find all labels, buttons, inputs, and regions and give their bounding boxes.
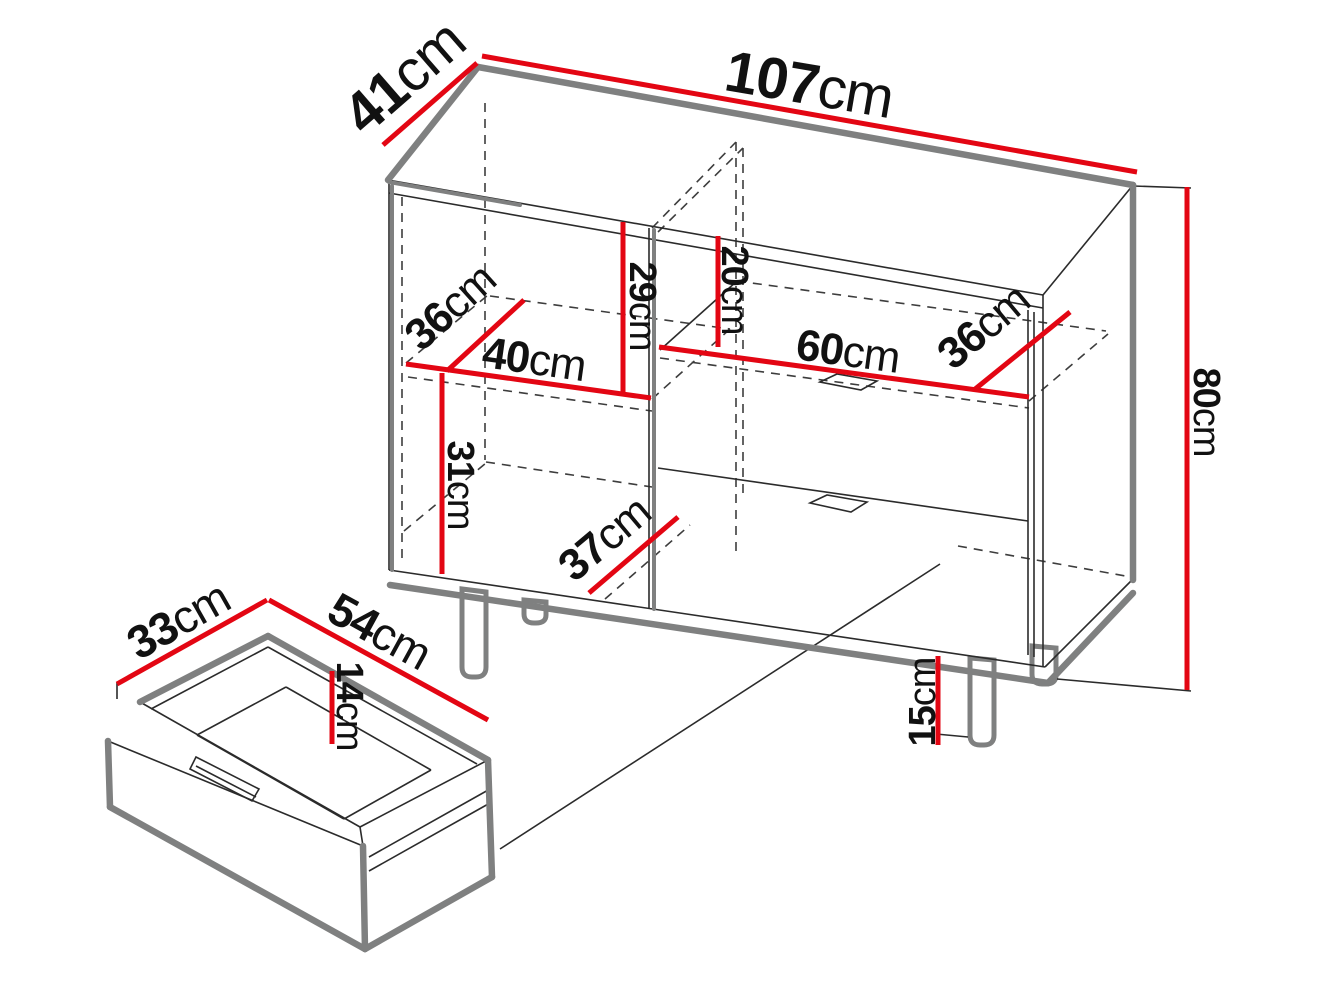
label-left-lower-height: 31cm	[439, 441, 481, 530]
label-drawer-height: 14cm	[328, 662, 370, 751]
label-left-upper-height: 29cm	[621, 262, 663, 351]
label-bottom-depth: 37cm	[549, 487, 660, 591]
label-left-shelf-width: 40cm	[479, 328, 588, 391]
cabinet-legs	[462, 589, 1056, 745]
label-drawer-depth: 33cm	[118, 571, 238, 670]
furniture-dimension-diagram: 107cm 41cm 80cm 29cm 20cm 36cm 40cm 60cm…	[0, 0, 1342, 1006]
front-left-leg	[462, 589, 486, 677]
label-right-width: 60cm	[793, 320, 902, 382]
cabinet-edges	[388, 180, 1191, 849]
drawer-separation-line	[658, 468, 1028, 521]
drawer-callout-line	[500, 564, 940, 849]
dimension-labels: 107cm 41cm 80cm 29cm 20cm 36cm 40cm 60cm…	[118, 8, 1227, 751]
label-right-gap-height: 20cm	[713, 246, 755, 335]
lower-drawer-handle	[810, 495, 867, 512]
label-cabinet-height: 80cm	[1185, 368, 1227, 457]
label-leg-height: 15cm	[902, 658, 944, 747]
drawer-figure	[108, 636, 492, 949]
